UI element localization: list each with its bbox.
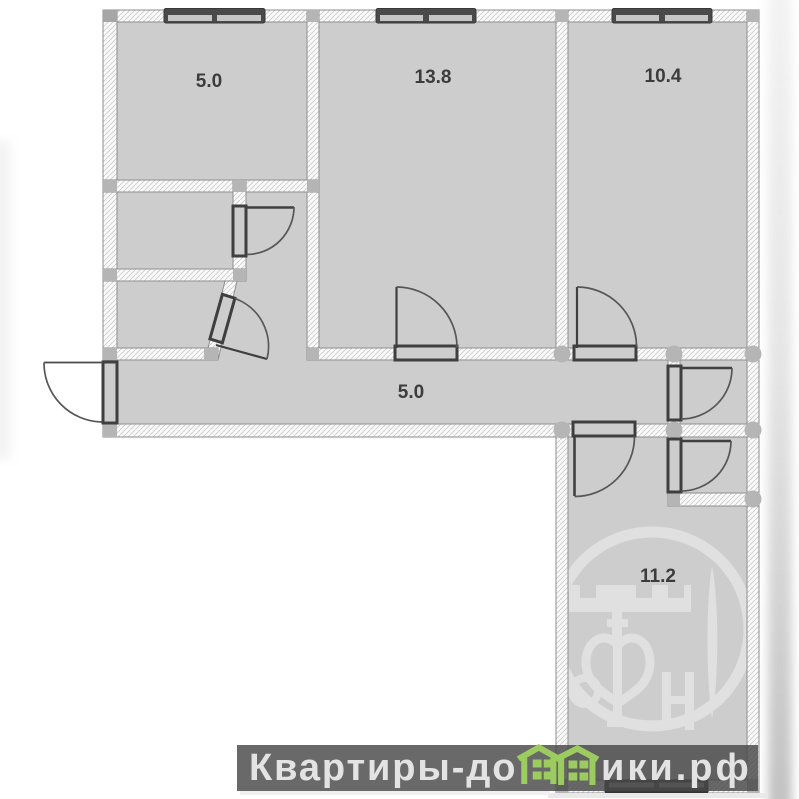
svg-text:10.4: 10.4 — [645, 66, 682, 87]
svg-text:5.0: 5.0 — [398, 382, 424, 403]
svg-text:Квартиры-до: Квартиры-до — [249, 747, 517, 789]
svg-text:ики.рф: ики.рф — [601, 747, 752, 789]
svg-text:5.0: 5.0 — [196, 71, 222, 92]
svg-text:11.2: 11.2 — [640, 566, 676, 587]
svg-text:13.8: 13.8 — [415, 67, 452, 88]
